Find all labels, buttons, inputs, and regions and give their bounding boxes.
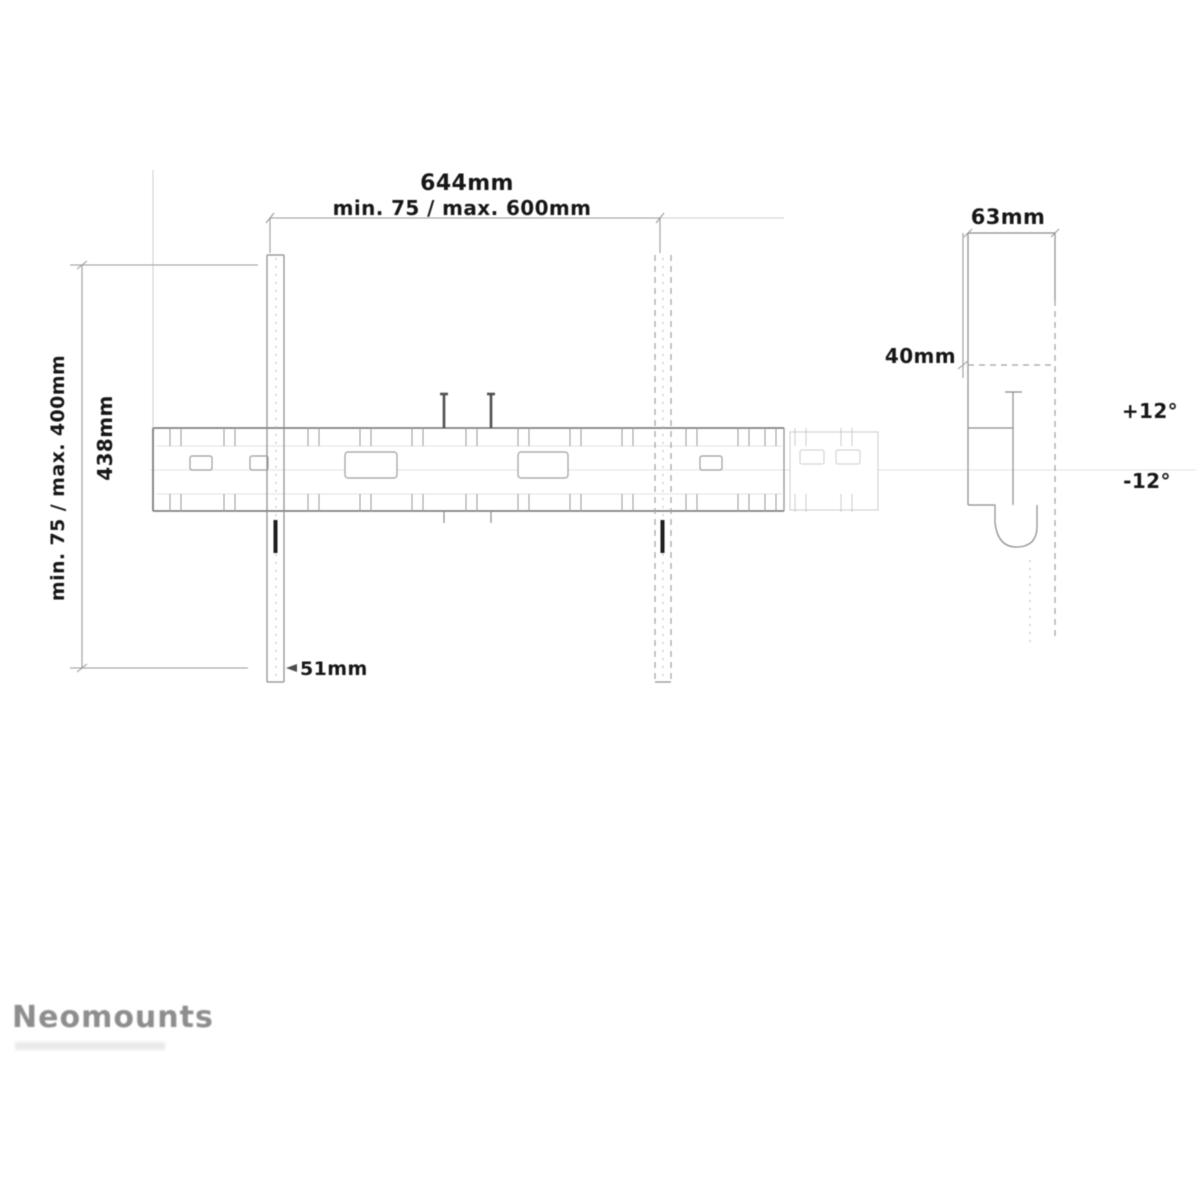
dimension-depth: 63mm [964, 205, 1059, 237]
dim-vesa-horizontal-label: min. 75 / max. 600mm [333, 196, 592, 220]
dim-offset-label: 40mm [885, 344, 956, 368]
plate-slot [190, 456, 212, 470]
plate-slot [700, 456, 722, 470]
dimension-top: 644mm min. 75 / max. 600mm [153, 170, 784, 428]
brand-tagline-decoration [15, 1042, 165, 1050]
plate-slot [250, 456, 268, 470]
right-rail [655, 255, 671, 682]
side-view: 63mm 40mm +12° -12° [885, 205, 1178, 648]
dim-width-label: 644mm [420, 171, 514, 196]
page: { "drawing": { "front": { "width_total":… [0, 0, 1200, 1200]
tilt-up-label: +12° [1122, 399, 1178, 423]
front-view: 644mm min. 75 / max. 600mm min. 75 / max… [47, 170, 1196, 682]
brand-logo: Neomounts [12, 1000, 272, 1035]
leader-rail-width: 51mm [286, 658, 368, 680]
plate-end-piece [790, 428, 878, 512]
dim-height-label: 438mm [93, 395, 117, 480]
fixing-bolts [440, 394, 495, 523]
tilt-angles: +12° -12° [1122, 399, 1178, 493]
tilt-down-label: -12° [1123, 469, 1171, 493]
left-rail [267, 255, 284, 682]
dim-vesa-vertical-label: min. 75 / max. 400mm [47, 355, 69, 601]
plate-slot [345, 452, 397, 478]
side-profile [968, 233, 1055, 648]
dimension-offset: 40mm [885, 233, 968, 378]
plate-slot [518, 452, 568, 478]
dim-depth-label: 63mm [971, 205, 1046, 229]
bracket-hook [968, 505, 1037, 547]
dim-rail-width-label: 51mm [300, 658, 368, 680]
